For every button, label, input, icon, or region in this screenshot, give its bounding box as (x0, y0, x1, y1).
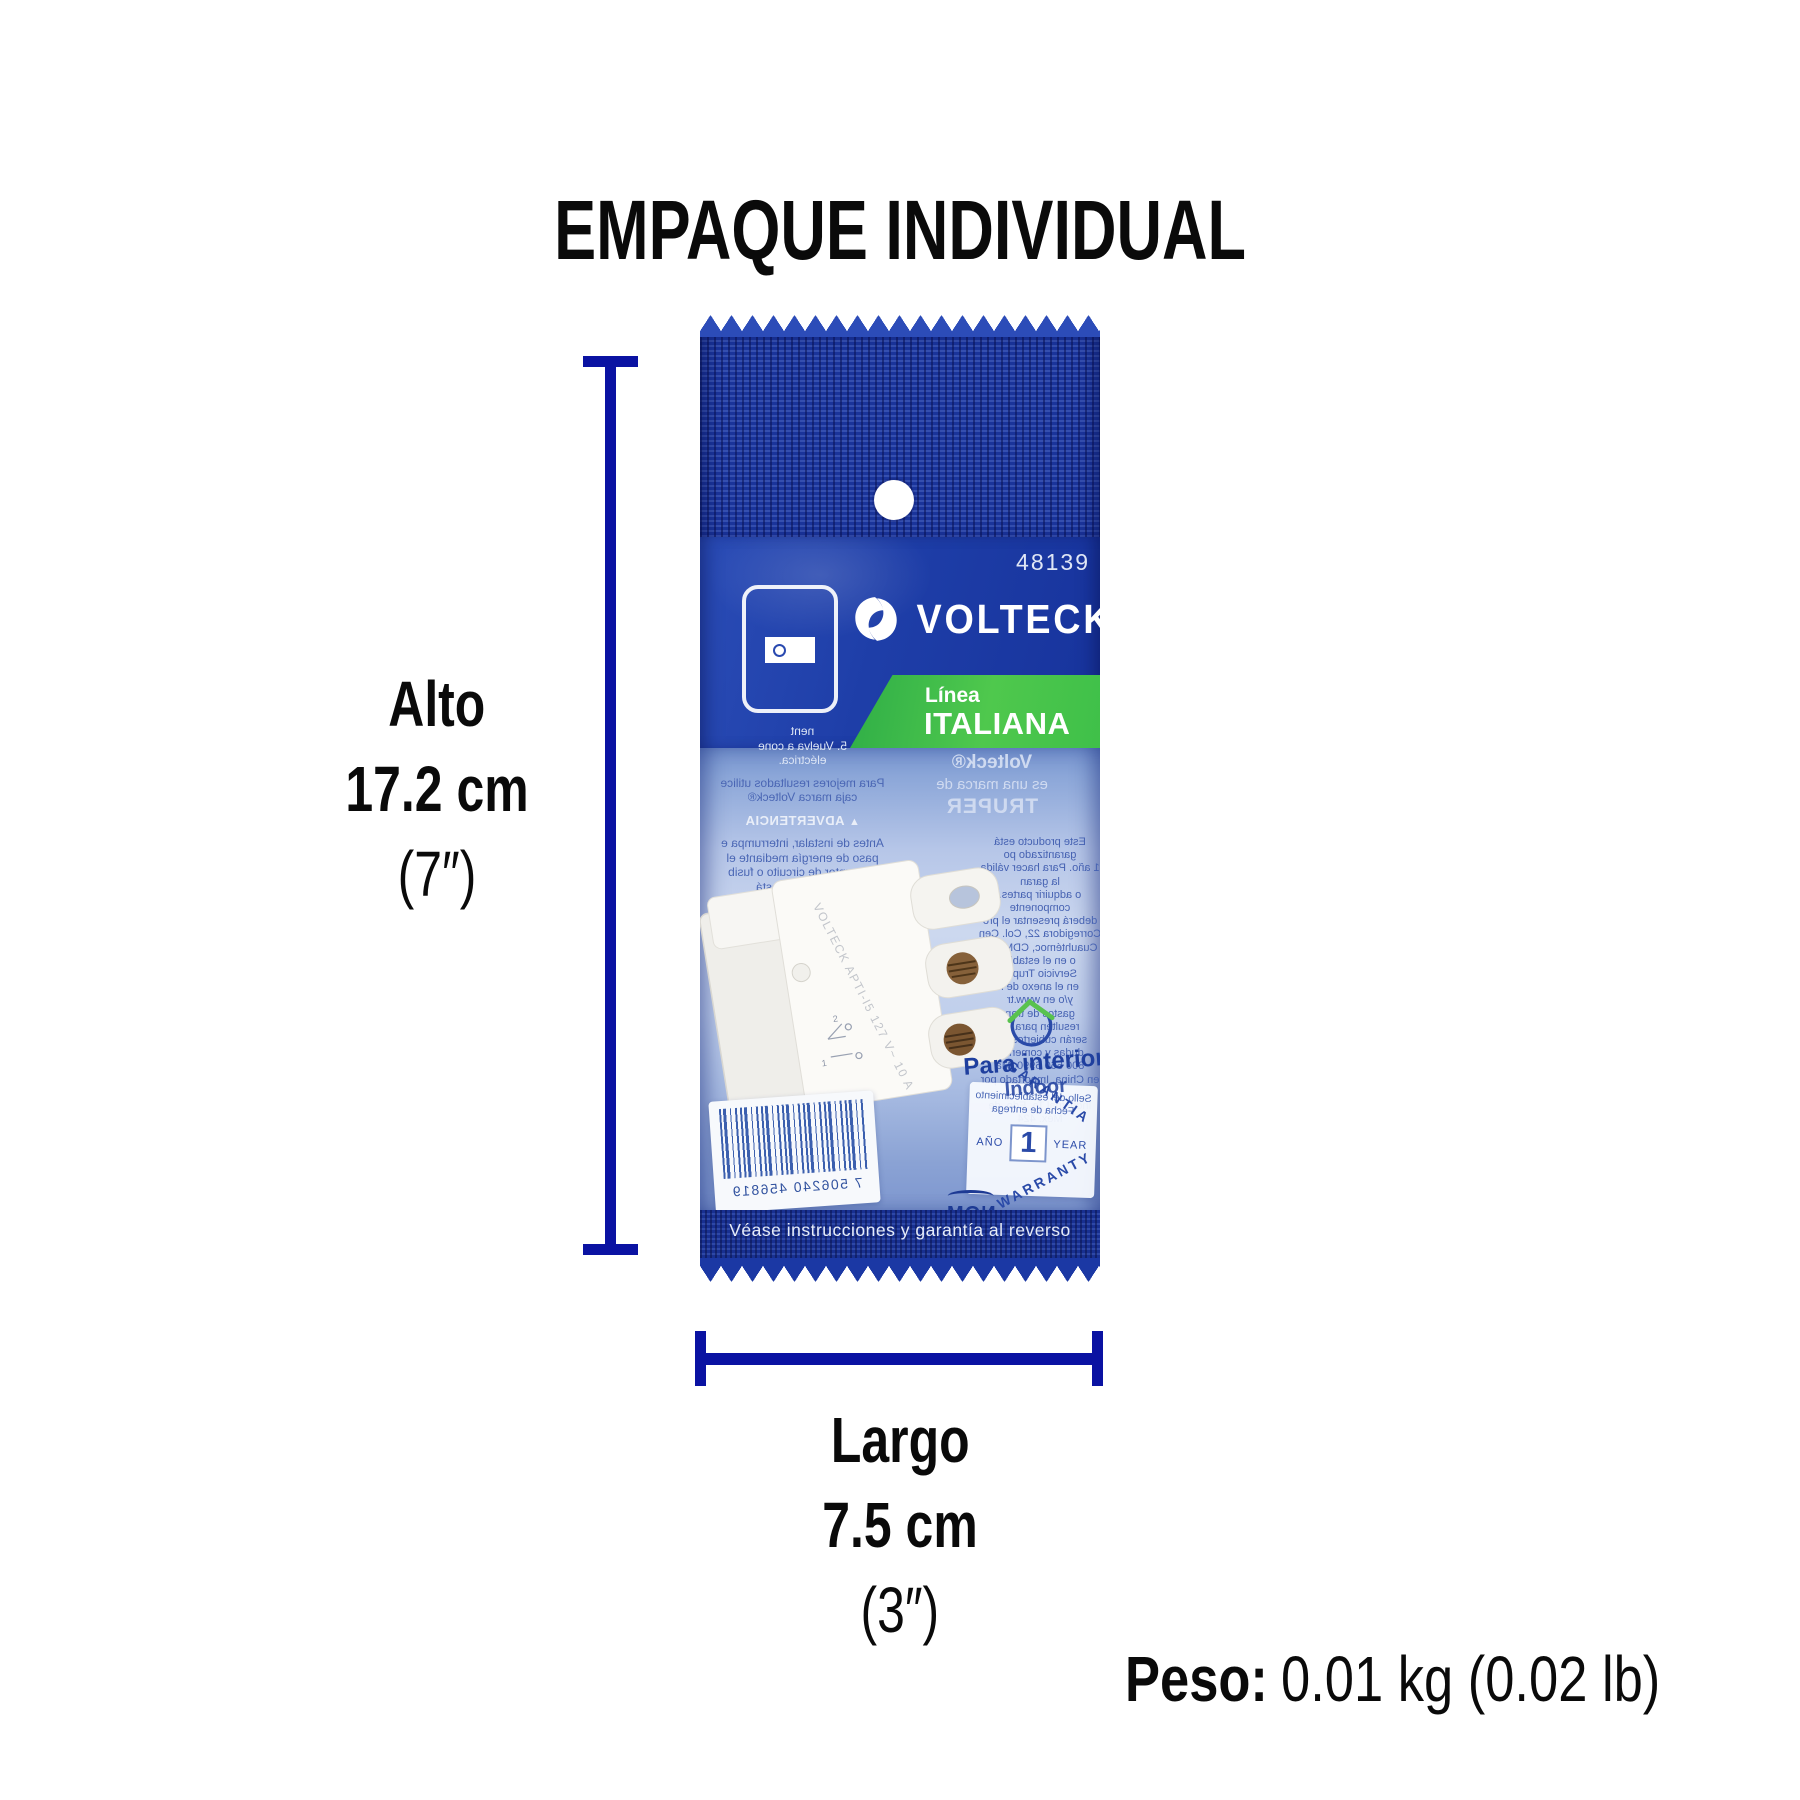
length-label-metric: 7.5 cm (822, 1483, 977, 1568)
height-dimension-line (583, 356, 638, 1255)
length-label-name: Largo (831, 1398, 970, 1483)
page-title: EMPAQUE INDIVIDUAL (439, 182, 1361, 279)
length-label: Largo 7.5 cm (3″) (800, 1398, 999, 1653)
warning-word: ADVERTENCIA (745, 813, 844, 828)
product-dimensions-card: EMPAQUE INDIVIDUAL Alto 17.2 cm (7″) Lar… (0, 0, 1800, 1800)
weight-label-value: 0.01 kg (0.02 lb) (1281, 1643, 1660, 1715)
brand-logo: VOLTECK ® (852, 595, 1100, 643)
brand-back-volteck: Volteck® (912, 752, 1072, 774)
back-text-light: nent5. Vuelva a coneeléctrica. (710, 724, 895, 768)
package-translucent-window: Volteck® es una marca de TRUPER nent5. V… (700, 748, 1100, 1210)
height-label: Alto 17.2 cm (7″) (320, 662, 555, 917)
brand-back-mirrored: Volteck® es una marca de TRUPER (912, 752, 1072, 819)
bottom-note: Véase instrucciones y garantía al revers… (700, 1220, 1100, 1241)
length-dimension-line (695, 1331, 1103, 1386)
page-title-text: EMPAQUE INDIVIDUAL (554, 182, 1246, 279)
height-label-metric: 17.2 cm (345, 747, 528, 832)
volteck-swoosh-icon (852, 595, 900, 643)
warning-line: ▲ADVERTENCIA (710, 814, 895, 830)
barcode-digits: 7 506240 456819 (724, 1174, 870, 1200)
back-text-tip: Para mejores resultados utilicecaja marc… (710, 776, 895, 805)
toggle-dot-icon (773, 644, 786, 657)
length-dim-bar (698, 1353, 1100, 1365)
length-label-imperial: (3″) (861, 1568, 940, 1653)
nom-arc (948, 1190, 994, 1202)
weight-label-key: Peso: (1125, 1643, 1268, 1715)
height-label-imperial: (7″) (398, 832, 477, 917)
barcode-bars (719, 1099, 869, 1179)
warranty-year-value: 1 (1010, 1124, 1047, 1162)
package-serrated-top-edge (700, 315, 1100, 339)
length-dim-cap-right (1092, 1331, 1103, 1386)
package-crimp-band-bottom: Véase instrucciones y garantía al revers… (700, 1210, 1100, 1260)
warning-triangle-icon: ▲ (849, 816, 860, 828)
product-package: 48139 VOLTECK ® Línea ITALIANA Volt (700, 315, 1100, 1282)
brand-wordmark: VOLTECK (917, 596, 1100, 643)
banner-line-big: ITALIANA (924, 706, 1070, 742)
indoor-use-block: Para interior Indoor (955, 991, 1100, 1105)
hang-hole (874, 480, 914, 520)
banner-line-small: Línea (925, 684, 980, 708)
brand-back-tagline: es una marca de (912, 776, 1072, 793)
indoor-house-icon (1000, 994, 1061, 1050)
barcode: 7 506240 456819 (708, 1090, 880, 1213)
height-label-name: Alto (388, 662, 485, 747)
weight-label: Peso:0.01 kg (0.02 lb) (1125, 1642, 1660, 1716)
warranty-ano-label: AÑO (976, 1136, 1003, 1149)
height-dim-bar (605, 359, 616, 1252)
package-crimp-band-top (700, 337, 1100, 537)
switch-plate-icon (742, 585, 838, 713)
package-serrated-bottom-edge (700, 1258, 1100, 1282)
height-dim-cap-bottom (583, 1244, 638, 1255)
switch-toggle-icon (765, 637, 815, 663)
sku-number: 48139 (1016, 549, 1090, 576)
brand-back-truper: TRUPER (912, 795, 1072, 819)
